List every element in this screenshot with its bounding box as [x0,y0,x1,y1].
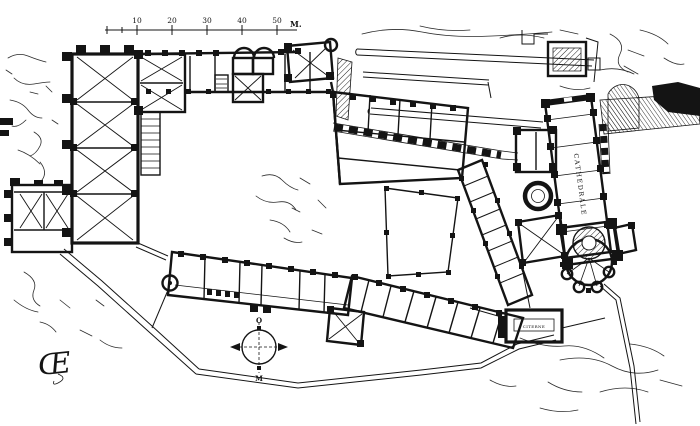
compass-rose: O M [230,316,288,383]
west-chapel [4,178,72,252]
floor-plan-engraving: 10 20 30 40 50 M. [0,0,700,426]
northeast-ramp [600,82,700,134]
scale-tick-20: 20 [167,16,177,25]
north-range [138,48,335,102]
scale-tick-10: 10 [132,16,142,25]
scale-tick-50: 50 [272,16,282,25]
compass-bottom-label: M [255,374,263,383]
compass-top-label: O [256,316,262,325]
cistern: CITERNE [470,308,605,342]
ramparts [60,249,556,388]
scale-tick-40: 40 [237,16,247,25]
scale-tick-30: 30 [202,16,212,25]
engraver-monogram: Œ [36,345,72,384]
engraving-page: 10 20 30 40 50 M. [0,0,700,426]
cistern-label: CITERNE [523,324,545,329]
scale-bar: 10 20 30 40 50 M. [105,16,302,35]
cathedral-label: CATHEDRALE [572,153,588,217]
scale-unit: M. [290,19,302,29]
southwest-wing [136,243,352,328]
great-hall [62,45,185,243]
crenellated-wall [333,123,610,174]
south-range [327,274,523,348]
east-block [330,82,532,305]
monogram-glyph: Œ [36,345,72,382]
